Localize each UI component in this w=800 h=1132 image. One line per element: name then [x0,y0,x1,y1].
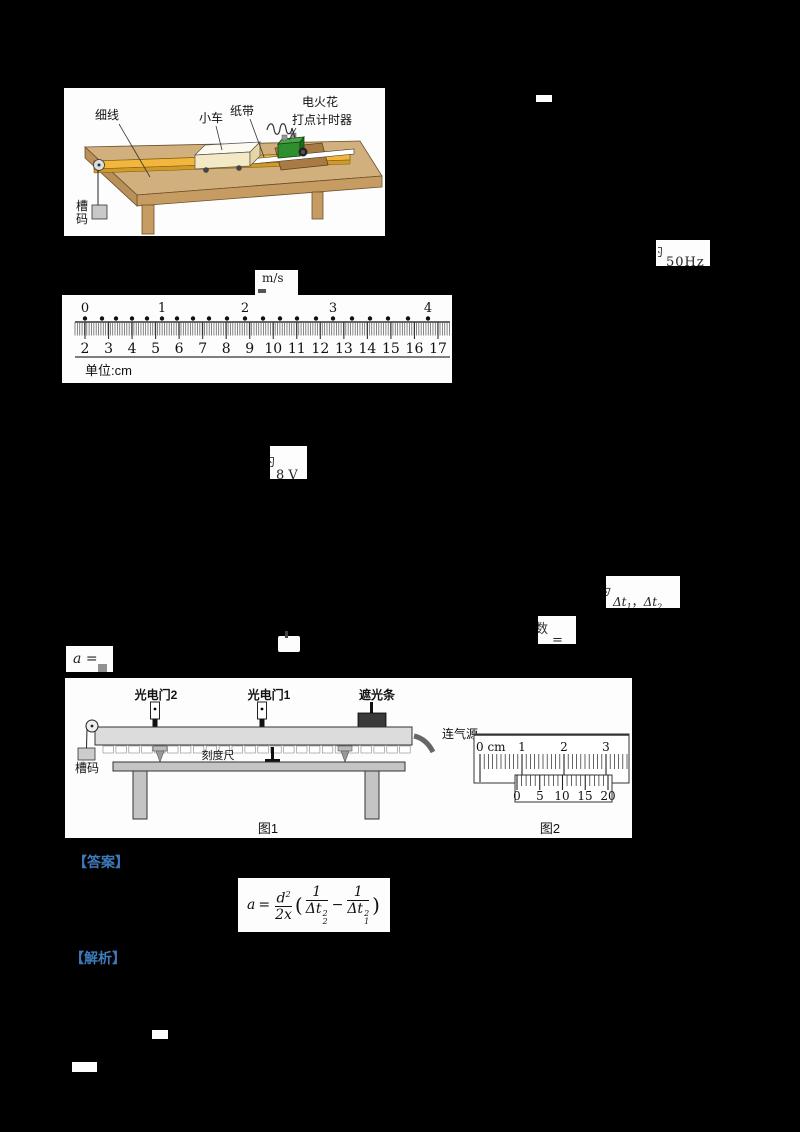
photogate2-body [151,702,160,719]
ruler-number: 5 [151,341,160,357]
track-pulley-axle [91,725,94,728]
tape-dot [243,316,247,320]
formula-fraction-2: 1 Δt21 [347,885,369,926]
delta-t1: Δt [613,595,627,608]
tape-dot [386,316,390,320]
ruler-number: 10 [264,341,282,357]
paren-open: ( [295,893,303,917]
tape-dot [295,316,299,320]
tape-dot [160,316,164,320]
ruler-number: 17 [429,341,447,357]
analysis-label: 【解析】 [70,948,126,968]
a-symbol: a [73,651,81,667]
equals-sign: = [552,633,563,644]
pulley-axle [98,164,101,167]
comma: ， [632,595,644,608]
label-weights-2: 码 [76,212,88,226]
tape-dot-label: 4 [424,301,432,316]
label-cart: 小车 [199,110,223,125]
f1-num: 1 [312,885,321,899]
ruler-number: 14 [358,341,376,357]
label-scale-ruler: 刻度尺 [202,748,235,762]
left-foot-nut [153,746,167,751]
caliper-main-number: 0 cm [476,740,506,754]
centre-stand-post [271,747,274,759]
delta-t2-sub: 2 [657,602,662,608]
document-page: 细线 小车 纸带 电火花 打点计时器 槽 码 约50Hz m/s 01234 2… [0,0,800,1132]
equals-sign: = [86,651,98,667]
acceleration-formula: a = d2 2x ( 1 Δt22 − 1 Δt21 ) [238,878,390,932]
ruler-number: 12 [311,341,329,357]
tape-dot-label: 0 [81,301,89,316]
dark-mark [258,289,266,293]
minus-sign: − [332,897,344,913]
tape-dot [225,316,229,320]
gray-notch [98,664,107,672]
ruler-number: 16 [406,341,424,357]
ruler-number: 9 [245,341,254,357]
caliper-vernier-number: 10 [554,789,569,803]
ruler-numbers: 234567891011121314151617 [81,341,447,357]
tape-dot-label: 1 [158,301,166,316]
track-segment [400,746,411,753]
label-thin-string: 细线 [95,108,119,122]
weight-block [92,205,107,219]
f2-den: Δt21 [347,902,369,926]
ruler-number: 13 [335,341,353,357]
tape-dot [207,316,211,320]
velocity-unit-fragment: m/s [255,270,298,296]
track-segment [116,746,127,753]
air-track-bar [95,727,412,745]
ruler-number: 2 [81,341,90,357]
voltage-fragment: 约8 V [270,446,307,479]
track-segment [361,746,372,753]
bench-leg-right [365,771,379,819]
ruler-number: 7 [198,341,207,357]
caliper-vernier-number: 5 [536,789,544,803]
right-foot-screw [341,751,349,762]
air-track-segments [103,746,410,753]
track-segment [129,746,140,753]
ruler-number: 8 [222,341,231,357]
bench-top [113,762,405,771]
airtrack-drawing: 光电门2 光电门1 遮光条 连气源 槽码 [65,678,632,838]
tape-dot [350,316,354,320]
white-fragment [152,1030,168,1039]
figure-cart-panel: 细线 小车 纸带 电火花 打点计时器 槽 码 [64,88,385,236]
tape-dot [314,316,318,320]
timer-knob [282,135,287,140]
right-foot-nut [338,746,352,751]
label-spark-timer-1: 电火花 [302,94,338,109]
cart-wheel [203,167,209,173]
cart-wheel [236,165,242,171]
voltage-text: 8 V [276,468,298,479]
left-foot-screw [156,751,164,762]
airtrack-panel: 光电门2 光电门1 遮光条 连气源 槽码 [65,678,632,838]
label-photogate1: 光电门1 [247,687,291,702]
ruler-number: 3 [104,341,113,357]
track-segment [322,746,333,753]
track-segment [284,746,295,753]
photogate2-dot [154,708,157,711]
frac-num: d2 [276,888,290,906]
track-string [87,729,88,748]
table-leg-left [142,205,154,234]
caliper-main-number: 3 [602,740,610,754]
formula-equals: = [258,897,270,913]
delta-t-fragment: 为Δt1，Δt2 [606,576,680,608]
formula-main-fraction: d2 2x [275,888,292,923]
shu-equals-fragment: 数= [538,616,576,644]
dark-tick-fragment [285,631,288,638]
tape-dot [191,316,195,320]
frequency-text: 50Hz [666,255,705,266]
caption-fig2: 图2 [540,821,560,836]
ruler-number: 15 [382,341,400,357]
tape-dot [368,316,372,320]
track-weight [78,748,95,760]
answer-label: 【答案】 [73,852,129,872]
tape-ruler-drawing: 01234 234567891011121314151617 单位:cm [62,295,452,383]
tape-dot [130,316,134,320]
frequency-fragment: 约50Hz [656,240,710,266]
ruler-number: 11 [288,341,306,357]
partial-char: 数 [538,616,552,644]
tape-dots [83,316,430,320]
track-segment [103,746,114,753]
velocity-unit-text: m/s [262,271,284,285]
label-weights-1: 槽 [76,199,88,213]
label-spark-timer-2: 打点计时器 [292,113,352,127]
f1-den: Δt22 [306,902,328,926]
small-blob-fragment [278,636,300,652]
tape-ruler-panel: 01234 234567891011121314151617 单位:cm [62,295,452,383]
caliper-main-number: 2 [560,740,568,754]
shutter-stem [370,702,373,714]
bench-leg-left [133,771,147,819]
ruler-number: 6 [175,341,184,357]
label-track-weights: 槽码 [75,761,99,775]
formula-a: a [247,897,255,913]
tape-dot [426,316,430,320]
white-dash-fragment [536,95,552,102]
tape-dot [261,316,265,320]
air-hose [414,736,433,752]
caliper-vernier-number: 15 [577,789,592,803]
caliper-vernier-number: 0 [513,789,521,803]
ruler-ticks [75,322,449,339]
track-segment [309,746,320,753]
tape-dot [83,316,87,320]
track-segment [168,746,179,753]
track-segment [180,746,191,753]
delta-t2: Δt [644,595,658,608]
shutter-block [358,713,386,727]
tape-dot [406,316,410,320]
paren-close: ) [372,893,380,917]
frac-den: 2x [275,908,292,922]
cart-figure-drawing: 细线 小车 纸带 电火花 打点计时器 槽 码 [64,88,385,236]
caliper-vernier-number: 20 [600,789,615,803]
caliper-main-number: 1 [518,740,526,754]
tape-dot [145,316,149,320]
tape-dot [114,316,118,320]
spark-timer-front [278,142,300,158]
partial-char: 约 [658,240,666,266]
track-segment [142,746,153,753]
tape-dot [331,316,335,320]
track-segment [297,746,308,753]
timer-reel-hub [301,150,305,154]
track-segment [258,746,269,753]
label-shutter: 遮光条 [359,687,396,702]
track-segment [374,746,385,753]
tape-dot-label: 3 [329,301,337,316]
tape-dot-labels: 01234 [81,301,432,316]
unit-label: 单位:cm [85,363,132,378]
label-photogate2: 光电门2 [134,687,178,702]
table-leg-right [312,192,323,219]
formula-fraction-1: 1 Δt22 [306,885,328,926]
photogate1-body [258,702,267,719]
f2-num: 1 [354,885,363,899]
white-fragment [72,1062,97,1072]
cart-front [195,152,250,169]
label-air-source: 连气源 [442,726,478,741]
partial-char: 为 [606,576,613,606]
track-segment [387,746,398,753]
photogate1-dot [261,708,264,711]
ruler-number: 4 [128,341,137,357]
track-segment [245,746,256,753]
tape-dot-label: 2 [241,301,249,316]
label-paper-tape: 纸带 [230,104,254,118]
tape-dot [278,316,282,320]
tape-dot [100,316,104,320]
tape-dot [175,316,179,320]
caption-fig1: 图1 [258,821,278,836]
